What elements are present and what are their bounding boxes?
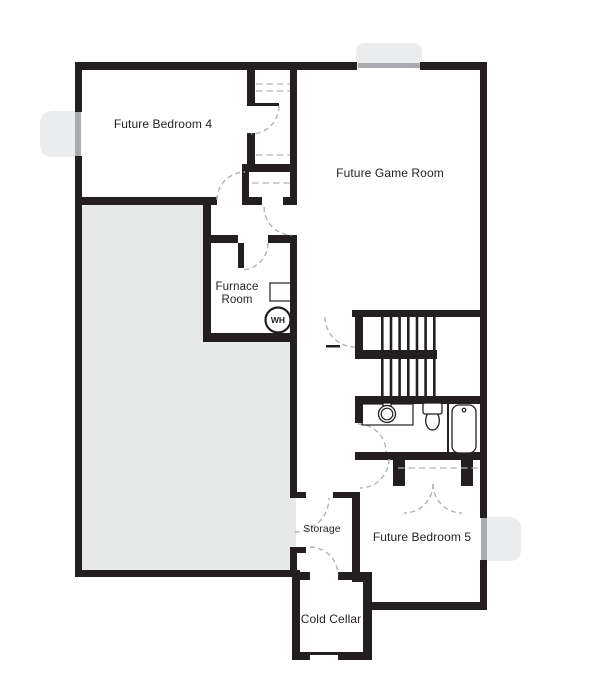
door-leaf [238, 243, 244, 268]
floor-plan-drawing [0, 0, 603, 699]
window-well-left [40, 111, 77, 157]
floor-plan: Future Bedroom 4 Future Game Room Furnac… [0, 0, 603, 699]
room-label-cold-cellar: Cold Cellar [291, 613, 371, 626]
stairs-icon [355, 317, 437, 400]
room-label-bedroom5: Future Bedroom 5 [342, 531, 502, 544]
door-leaf [251, 103, 279, 106]
door-leaf [326, 345, 340, 348]
room-label-bedroom4: Future Bedroom 4 [83, 118, 243, 131]
bathtub-icon [447, 404, 476, 453]
window-left [75, 112, 81, 156]
unfinished-area [82, 205, 296, 572]
door-leaf [242, 172, 249, 200]
water-heater-label: WH [266, 316, 290, 325]
sink-icon [379, 403, 396, 423]
room-label-game-room: Future Game Room [310, 167, 470, 180]
toilet-icon [423, 403, 442, 430]
window-top [358, 63, 420, 68]
furnace-icon [270, 283, 291, 301]
room-label-furnace-room: Furnace Room [207, 281, 267, 307]
